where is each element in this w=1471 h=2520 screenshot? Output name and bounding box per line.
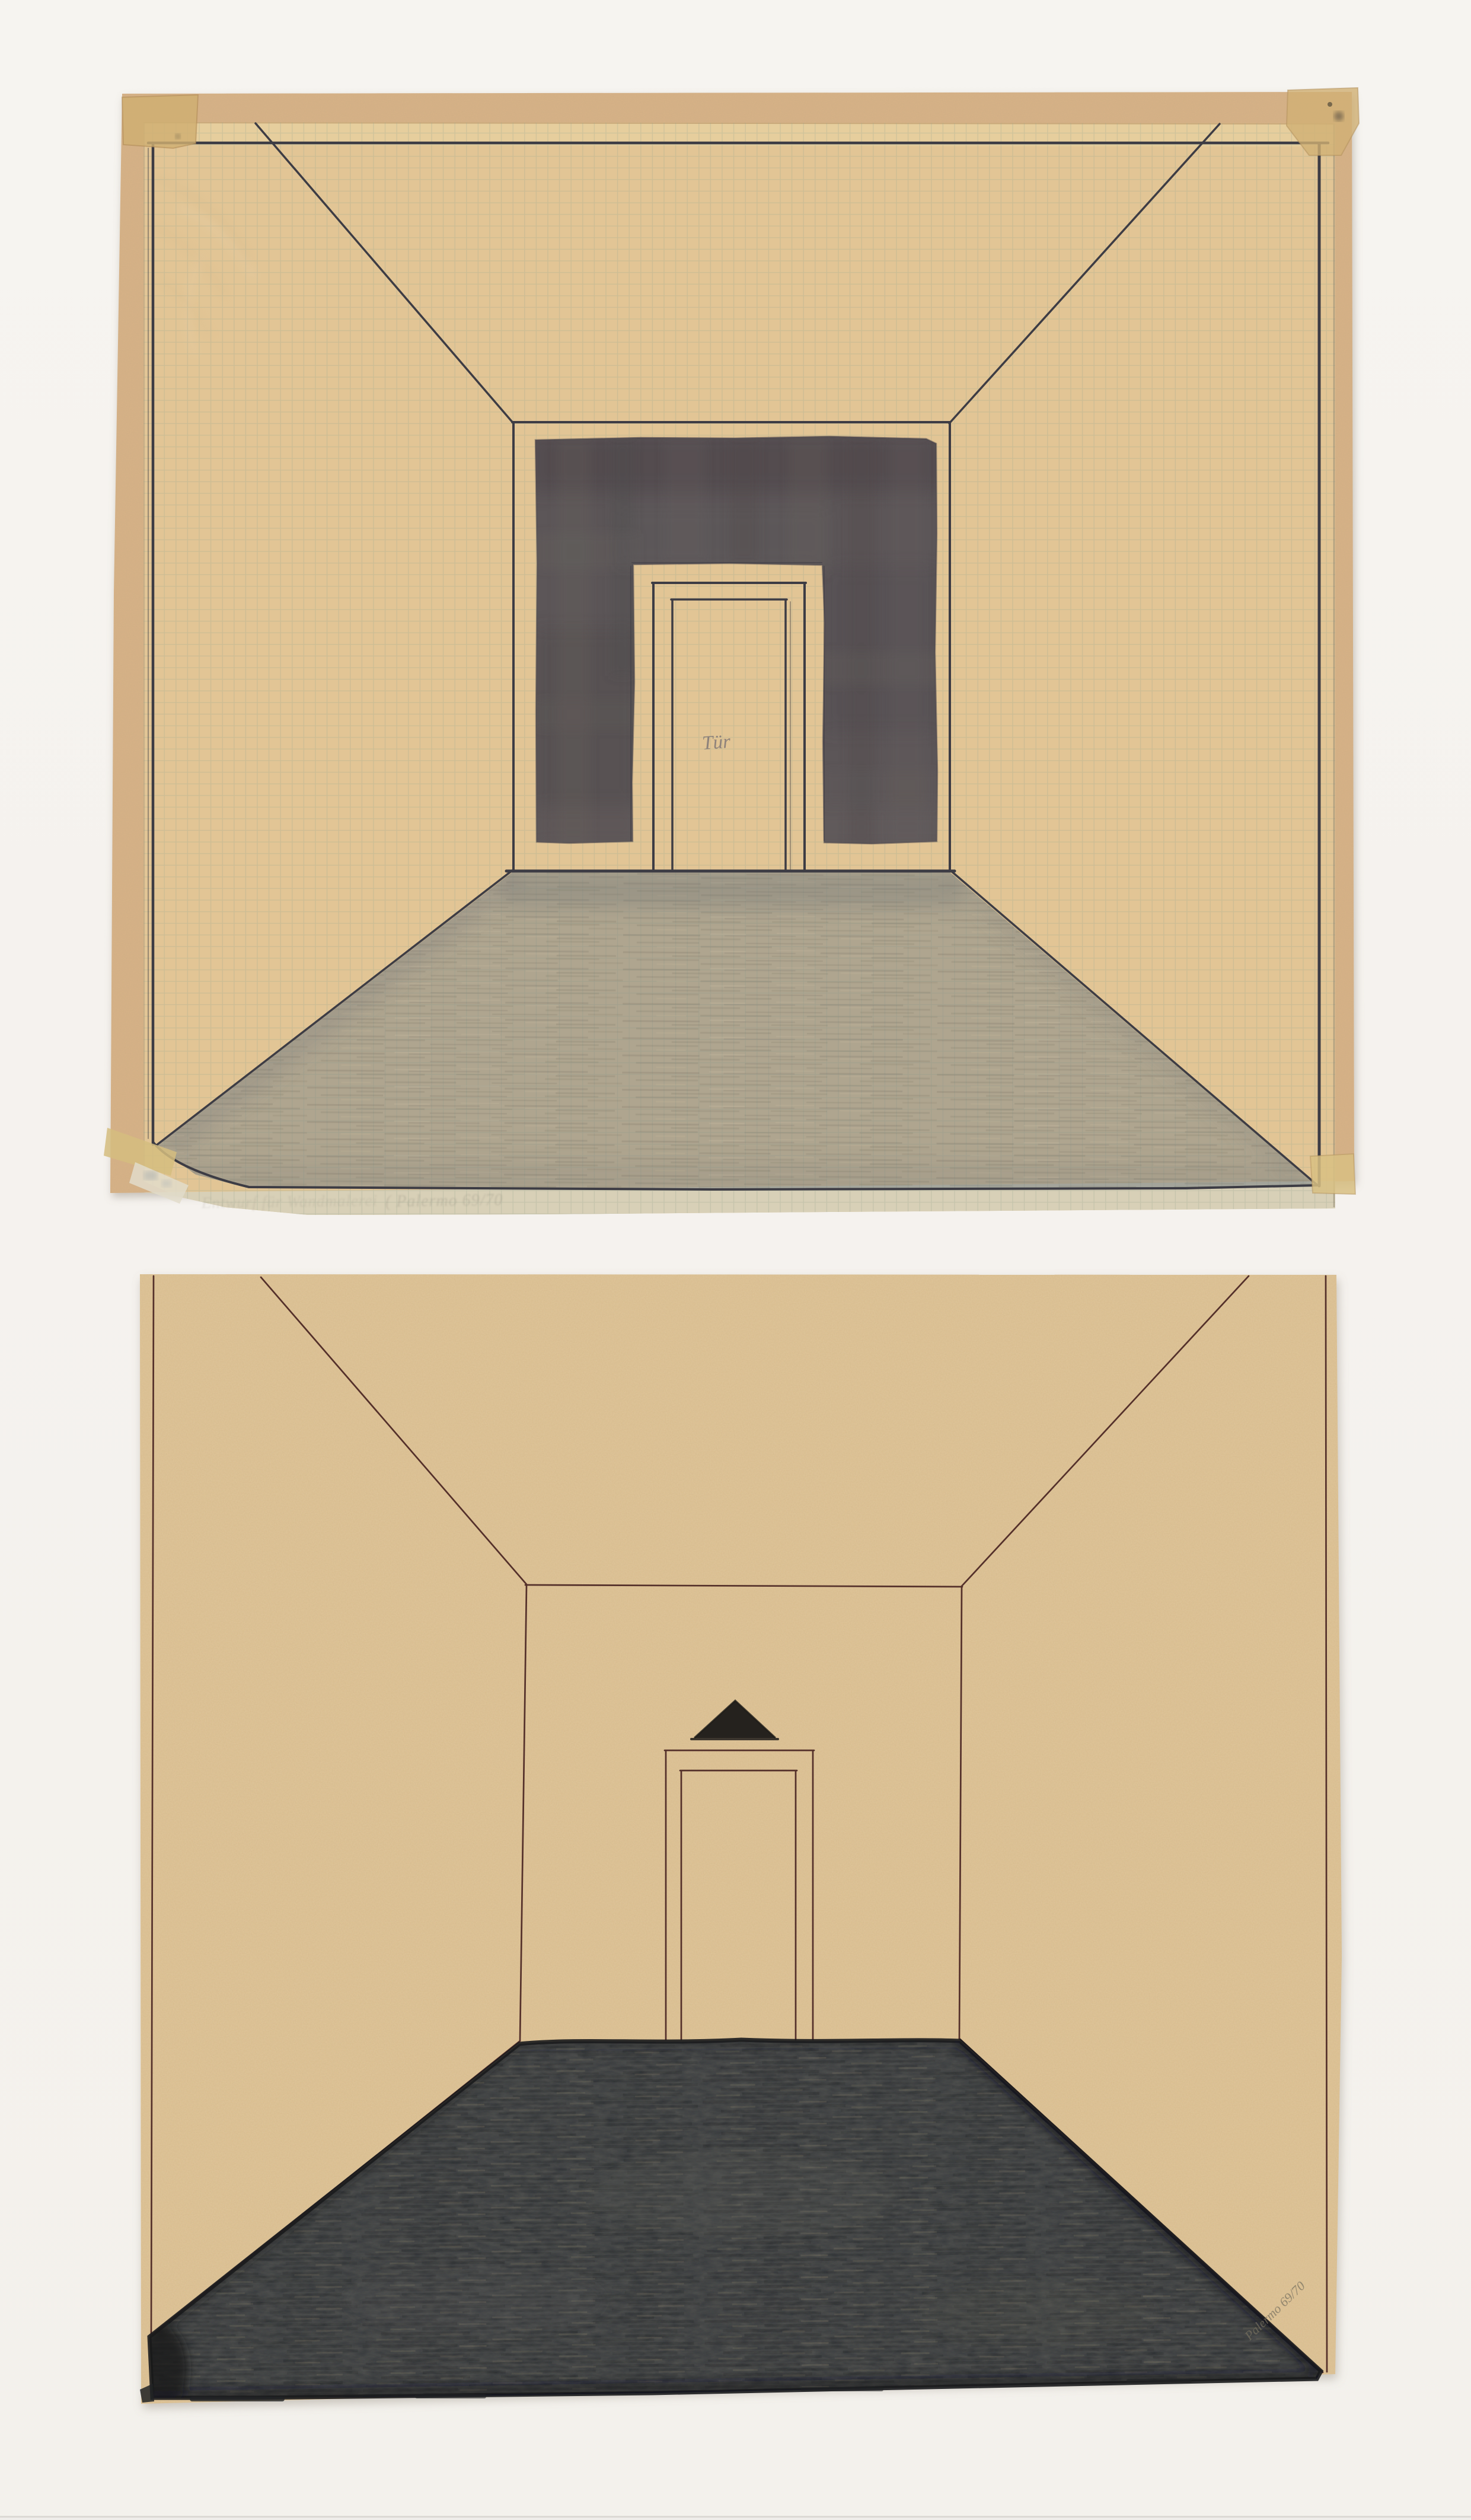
svg-text:Entwurf für Wandmalerei: Entwurf für Wandmalerei xyxy=(201,1191,378,1211)
svg-text:( Palermo 69/70: ( Palermo 69/70 xyxy=(385,1191,503,1211)
svg-text:Tür: Tür xyxy=(701,731,731,754)
